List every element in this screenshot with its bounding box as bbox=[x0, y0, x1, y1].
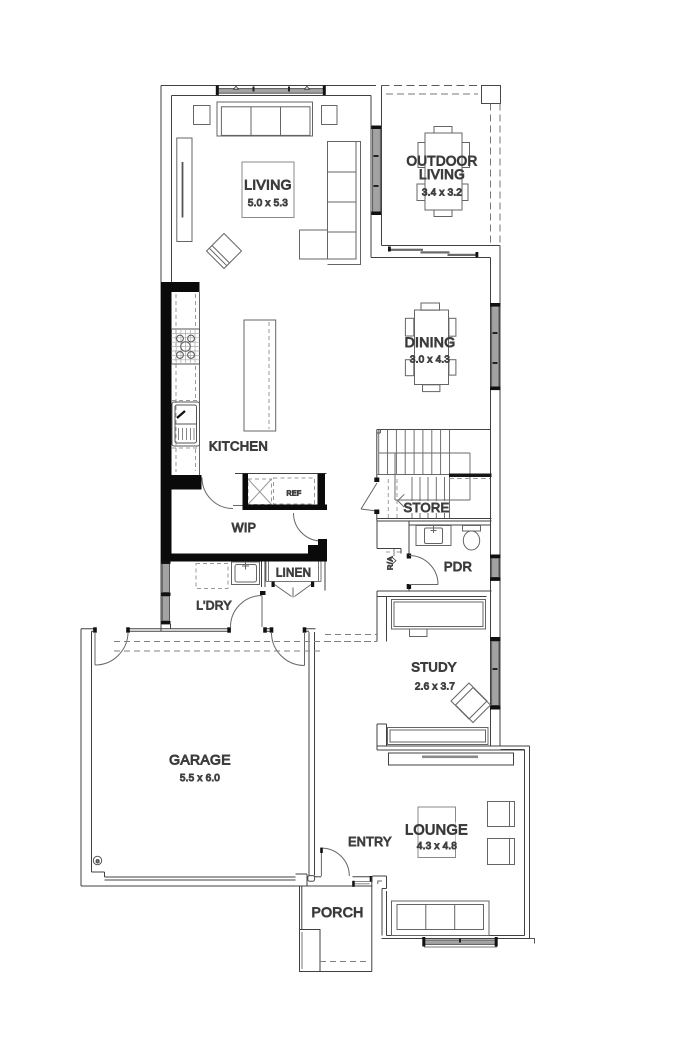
svg-text:L'DRY: L'DRY bbox=[196, 599, 232, 613]
svg-text:4.3 x 4.8: 4.3 x 4.8 bbox=[417, 841, 457, 852]
svg-text:2.6 x 3.7: 2.6 x 3.7 bbox=[415, 682, 455, 693]
svg-text:3.4 x 3.2: 3.4 x 3.2 bbox=[422, 188, 462, 199]
svg-text:5.0 x 5.3: 5.0 x 5.3 bbox=[248, 198, 288, 209]
svg-text:c: c bbox=[96, 858, 100, 865]
svg-text:LINEN: LINEN bbox=[276, 568, 311, 580]
svg-text:WIP: WIP bbox=[232, 521, 257, 535]
svg-text:3.0 x 4.3: 3.0 x 4.3 bbox=[410, 355, 450, 366]
svg-text:STUDY: STUDY bbox=[411, 660, 457, 675]
svg-text:KITCHEN: KITCHEN bbox=[209, 439, 268, 454]
svg-text:REF: REF bbox=[287, 491, 302, 498]
svg-text:5.5 x 6.0: 5.5 x 6.0 bbox=[180, 773, 220, 784]
svg-text:LIVING: LIVING bbox=[419, 167, 465, 182]
svg-text:STORE: STORE bbox=[403, 500, 449, 515]
svg-text:LIVING: LIVING bbox=[244, 177, 292, 193]
svg-text:DINING: DINING bbox=[405, 334, 456, 350]
svg-text:LOUNGE: LOUNGE bbox=[405, 823, 468, 839]
svg-text:PORCH: PORCH bbox=[311, 904, 363, 920]
svg-text:ENTRY: ENTRY bbox=[348, 835, 392, 849]
svg-text:PDR: PDR bbox=[444, 559, 472, 574]
svg-text:GARAGE: GARAGE bbox=[169, 752, 231, 768]
